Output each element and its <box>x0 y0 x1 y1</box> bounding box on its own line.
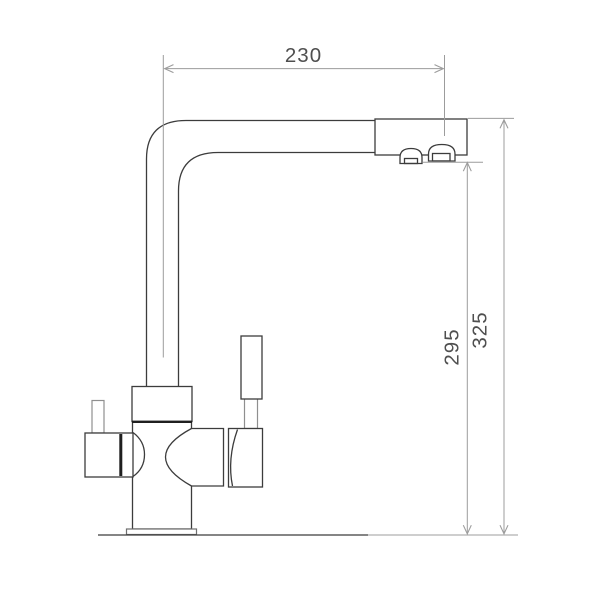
dim-spout-reach: 230 <box>163 44 444 358</box>
aerator-small <box>400 149 422 164</box>
right-handle-body <box>229 429 263 488</box>
left-handle-body <box>85 433 133 477</box>
dim-spout-reach-label: 230 <box>285 44 322 67</box>
dim-total-height: 325 <box>468 118 514 533</box>
dim-outlet-height-label: 295 <box>441 328 464 365</box>
spout-inner-line <box>179 153 376 387</box>
faucet-outline <box>85 119 518 535</box>
spout-base-block <box>132 387 192 422</box>
right-handle-neck <box>245 399 258 429</box>
faucet-technical-drawing: 230 295 325 <box>0 0 600 600</box>
drawing-svg: 230 295 325 <box>0 0 600 600</box>
right-handle-lever <box>241 336 262 399</box>
left-handle-stem <box>92 401 104 434</box>
base-flange <box>127 529 197 535</box>
dim-total-height-label: 325 <box>469 311 492 348</box>
